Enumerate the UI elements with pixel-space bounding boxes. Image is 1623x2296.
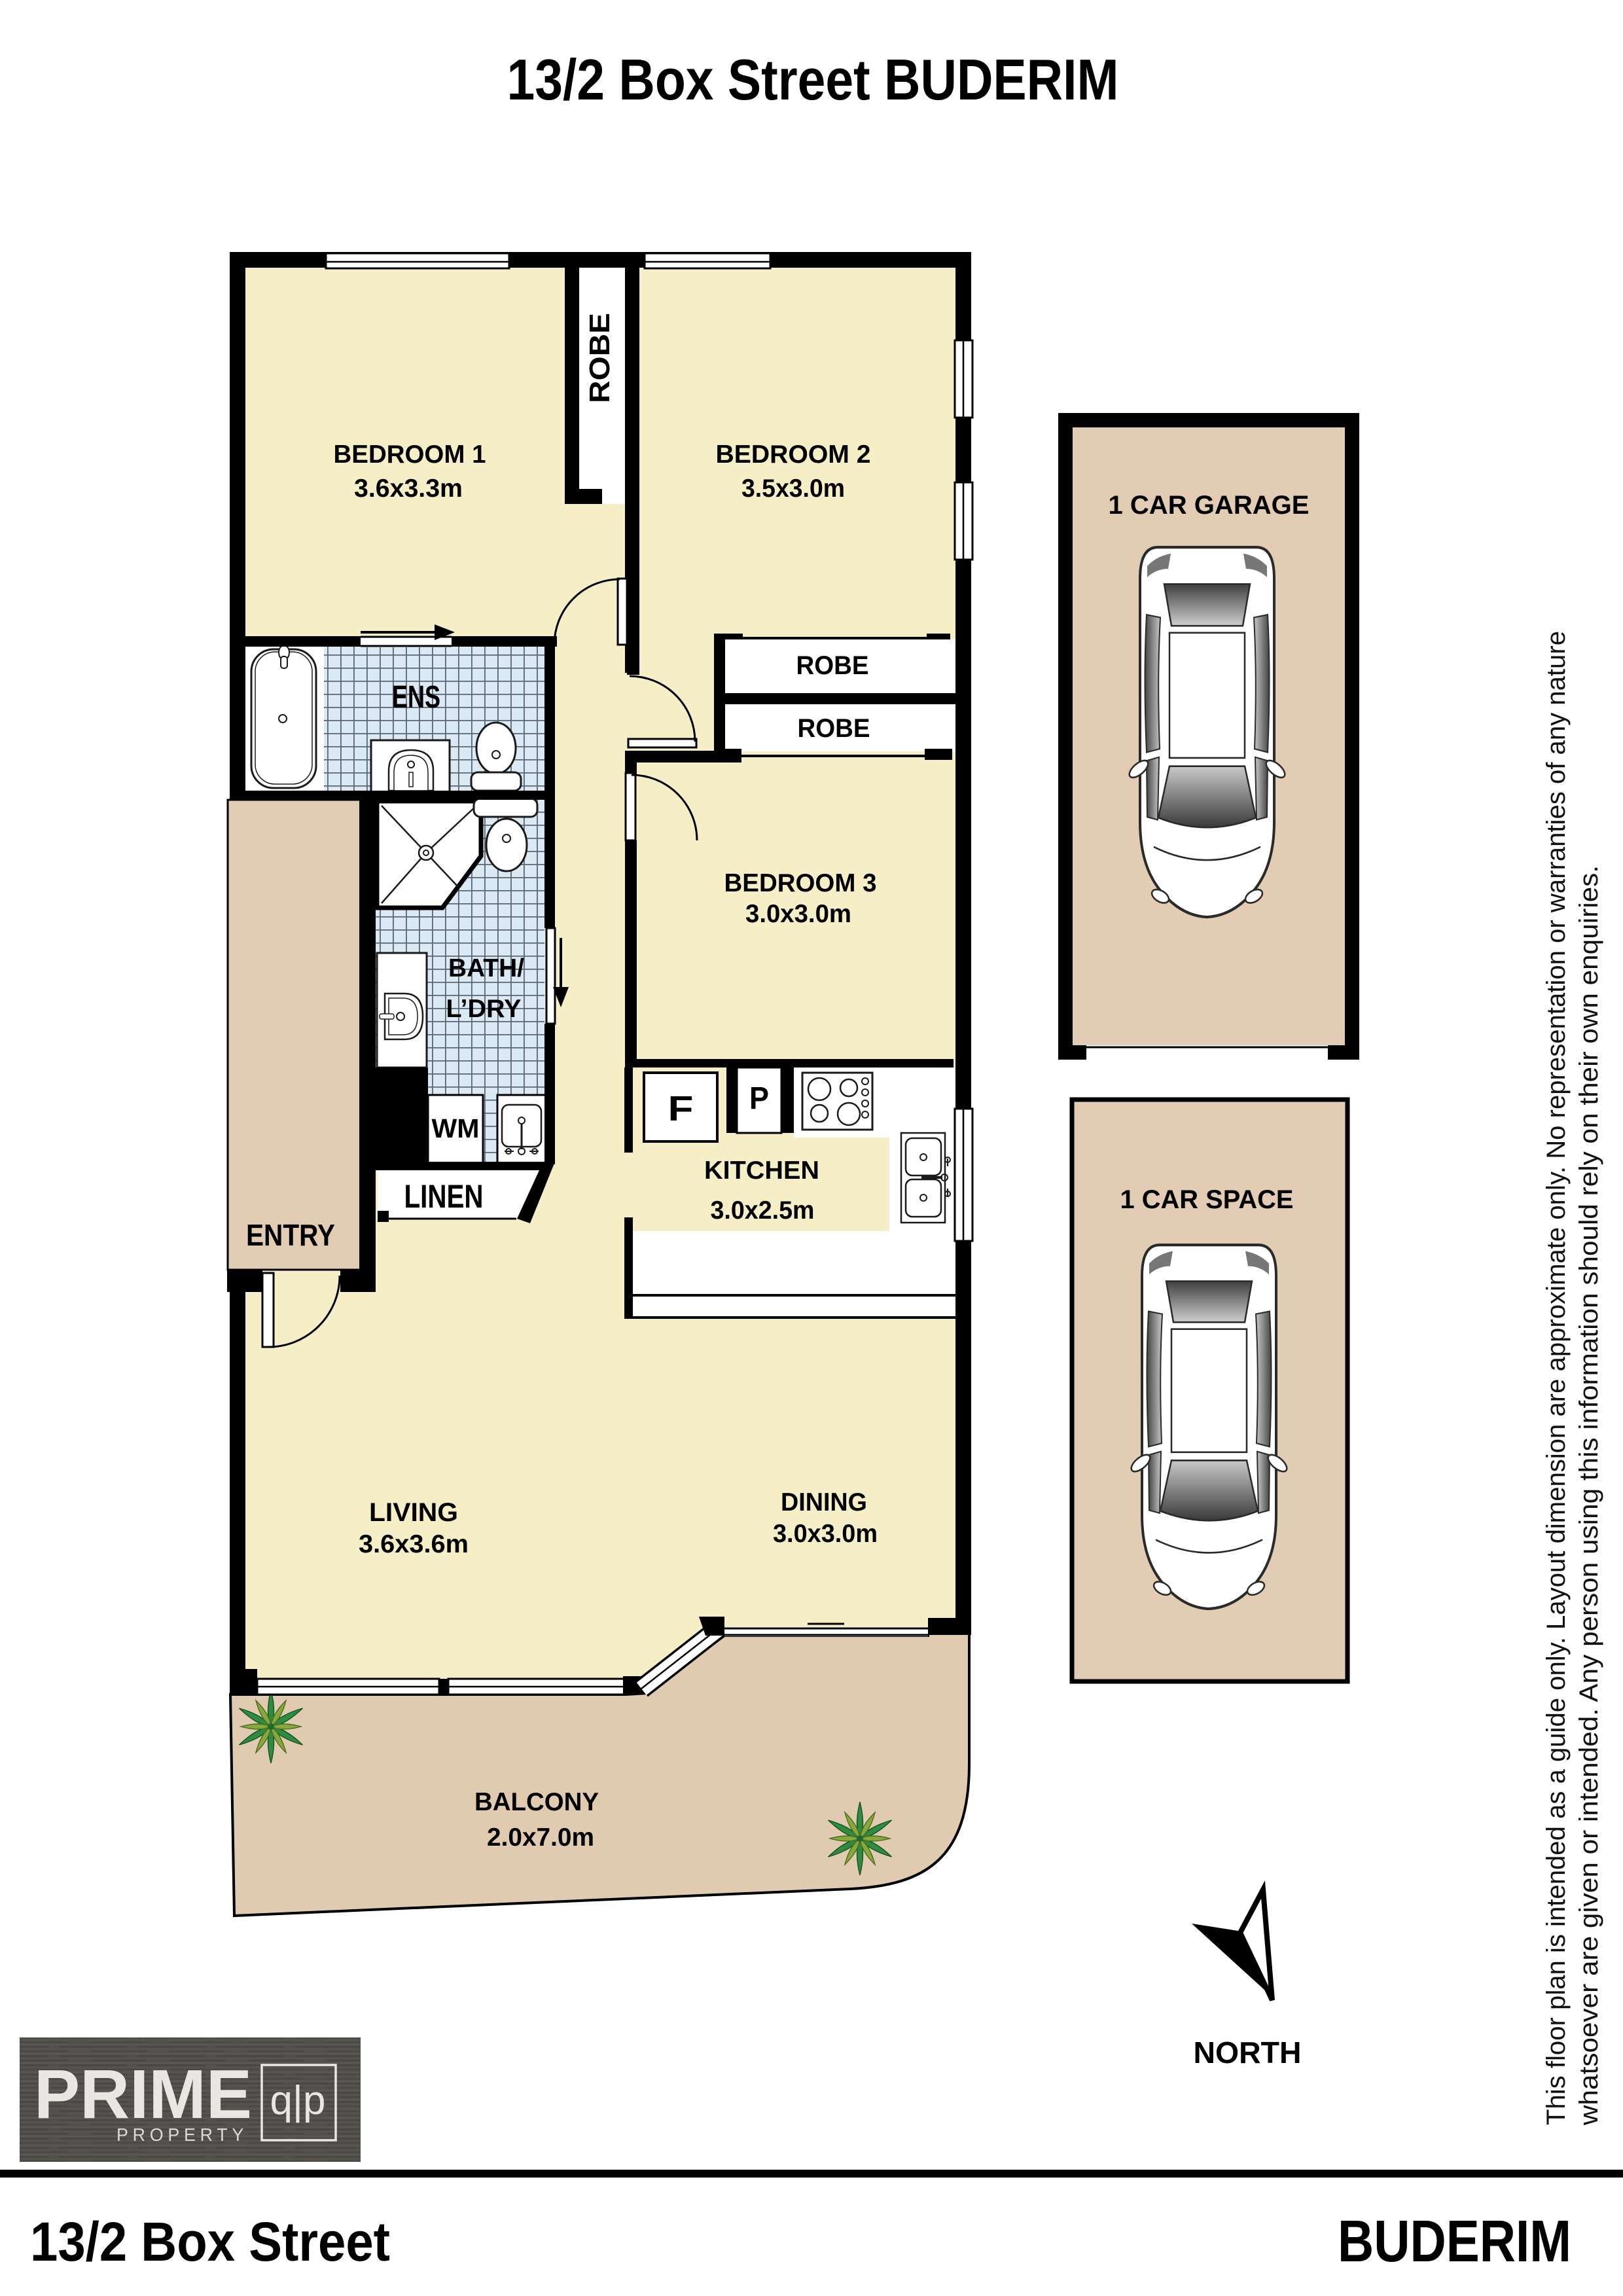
svg-text:ROBE: ROBE (584, 313, 616, 403)
svg-text:BEDROOM 2: BEDROOM 2 (716, 440, 871, 469)
svg-text:LINEN: LINEN (404, 1178, 484, 1215)
svg-text:BALCONY: BALCONY (474, 1788, 599, 1816)
svg-text:3.5x3.0m: 3.5x3.0m (741, 475, 845, 503)
svg-text:PRIME: PRIME (34, 2056, 252, 2133)
svg-text:WM: WM (432, 1113, 480, 1143)
svg-text:ENS: ENS (392, 680, 440, 715)
svg-text:ENTRY: ENTRY (246, 1218, 335, 1252)
svg-text:ROBE: ROBE (796, 651, 869, 680)
svg-text:3.6x3.6m: 3.6x3.6m (359, 1530, 469, 1558)
svg-text:P: P (749, 1081, 769, 1116)
svg-text:3.0x2.5m: 3.0x2.5m (711, 1196, 815, 1225)
svg-text:BEDROOM 1: BEDROOM 1 (334, 440, 486, 469)
svg-text:L’DRY: L’DRY (446, 995, 522, 1023)
svg-text:ROBE: ROBE (798, 714, 870, 743)
svg-text:13/2 Box Street BUDERIM: 13/2 Box Street BUDERIM (507, 47, 1119, 112)
svg-text:1 CAR GARAGE: 1 CAR GARAGE (1109, 491, 1310, 520)
svg-text:This floor plan is intended as: This floor plan is intended as a guide o… (1542, 631, 1571, 2125)
svg-text:DINING: DINING (781, 1488, 867, 1516)
svg-text:BEDROOM 3: BEDROOM 3 (724, 869, 877, 897)
svg-text:3.0x3.0m: 3.0x3.0m (745, 900, 851, 928)
svg-text:3.6x3.3m: 3.6x3.3m (354, 475, 463, 503)
svg-text:whatsoever are given or intend: whatsoever are given or intended. Any pe… (1575, 865, 1603, 2126)
svg-text:13/2 Box Street: 13/2 Box Street (30, 2211, 390, 2272)
svg-text:F: F (668, 1089, 694, 1128)
svg-text:1 CAR SPACE: 1 CAR SPACE (1120, 1185, 1294, 1214)
svg-text:2.0x7.0m: 2.0x7.0m (487, 1823, 594, 1852)
svg-text:BATH/: BATH/ (448, 954, 524, 982)
svg-text:BUDERIM: BUDERIM (1338, 2209, 1571, 2274)
svg-text:KITCHEN: KITCHEN (704, 1157, 819, 1185)
svg-text:q|p: q|p (270, 2078, 325, 2123)
svg-text:3.0x3.0m: 3.0x3.0m (773, 1520, 878, 1548)
svg-text:NORTH: NORTH (1194, 2036, 1302, 2070)
svg-text:LIVING: LIVING (369, 1498, 458, 1527)
svg-text:PROPERTY: PROPERTY (116, 2125, 248, 2145)
